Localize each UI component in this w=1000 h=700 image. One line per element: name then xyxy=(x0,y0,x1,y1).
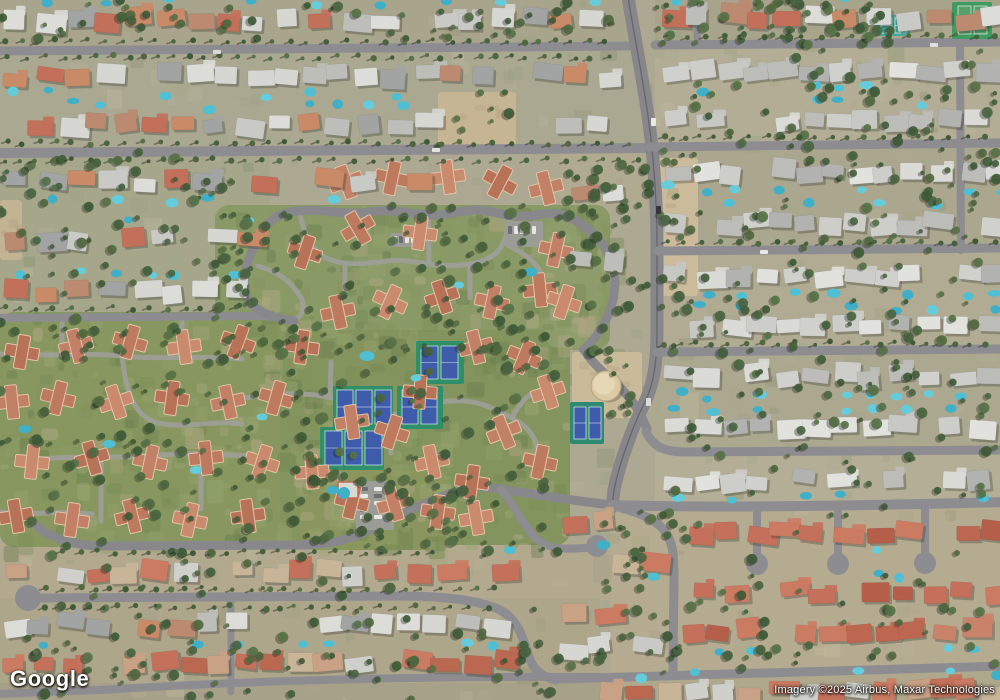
google-logo[interactable]: Google xyxy=(10,666,89,692)
map-viewport[interactable]: Google Imagery ©2025 Airbus, Maxar Techn… xyxy=(0,0,1000,700)
satellite-imagery xyxy=(0,0,1000,700)
imagery-attribution-text: Imagery ©2025 Airbus, Maxar Technologies xyxy=(774,684,995,696)
